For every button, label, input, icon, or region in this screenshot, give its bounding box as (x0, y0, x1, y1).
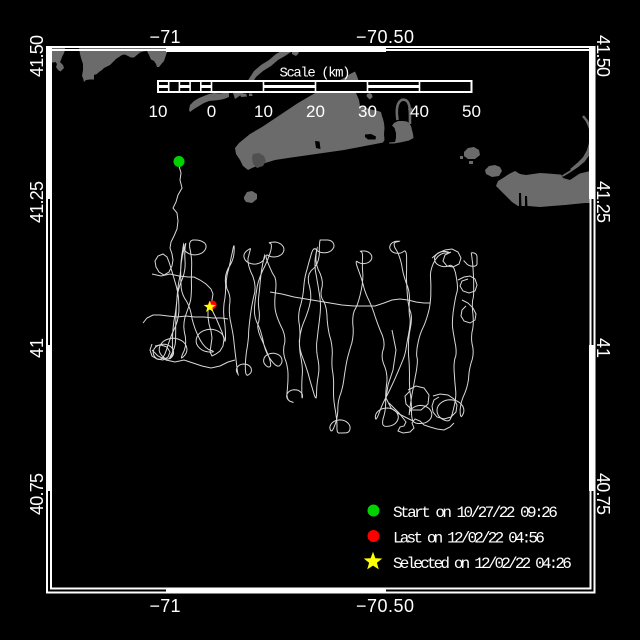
svg-text:40: 40 (410, 102, 429, 121)
svg-text:Start on 10/27/22 09:26: Start on 10/27/22 09:26 (393, 504, 557, 522)
svg-text:41: 41 (27, 338, 47, 358)
svg-text:40.75: 40.75 (27, 473, 47, 515)
svg-text:50: 50 (462, 102, 481, 121)
svg-text:−70.50: −70.50 (356, 27, 414, 47)
svg-text:41.25: 41.25 (593, 181, 613, 223)
svg-text:41.50: 41.50 (27, 35, 47, 77)
svg-text:Selected on 12/02/22 04:26: Selected on 12/02/22 04:26 (393, 555, 571, 573)
svg-text:20: 20 (306, 102, 325, 121)
svg-text:0: 0 (207, 102, 216, 121)
svg-text:−71: −71 (150, 27, 181, 47)
svg-text:41: 41 (593, 338, 613, 358)
svg-text:Scale (km): Scale (km) (280, 66, 351, 82)
svg-text:40.75: 40.75 (593, 473, 613, 515)
svg-text:30: 30 (358, 102, 377, 121)
svg-text:10: 10 (254, 102, 273, 121)
svg-text:−71: −71 (150, 596, 181, 616)
svg-text:41.25: 41.25 (27, 181, 47, 223)
svg-text:−70.50: −70.50 (356, 596, 414, 616)
svg-text:10: 10 (149, 102, 168, 121)
svg-text:41.50: 41.50 (593, 35, 613, 77)
svg-text:Last on 12/02/22 04:56: Last on 12/02/22 04:56 (393, 530, 544, 548)
